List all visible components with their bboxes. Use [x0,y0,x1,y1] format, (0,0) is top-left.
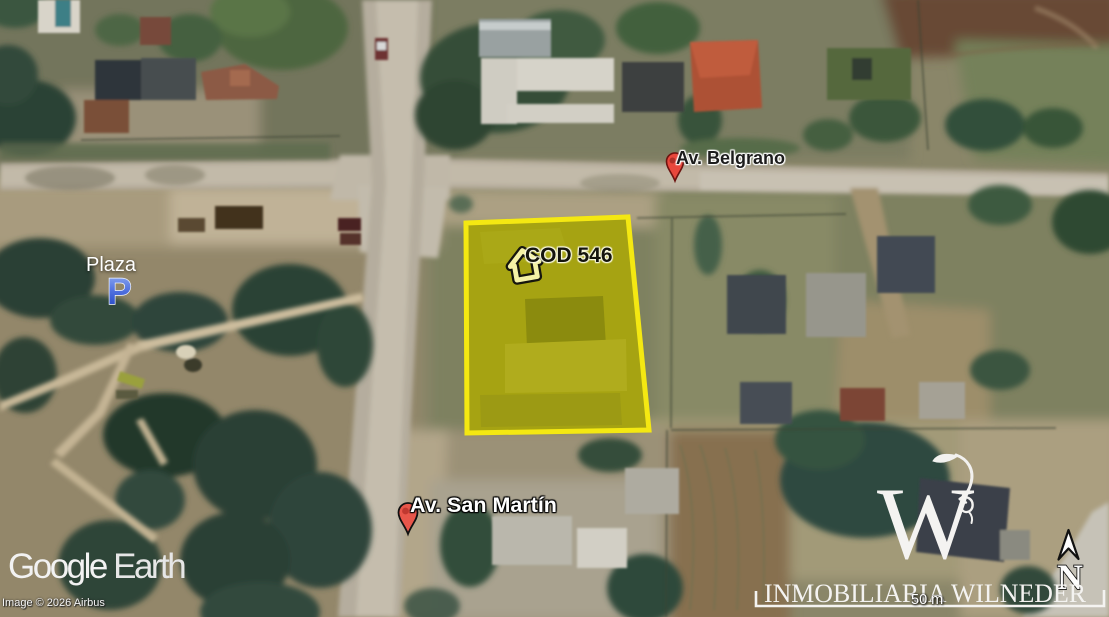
svg-text:W: W [877,467,975,581]
svg-text:P: P [107,271,132,312]
